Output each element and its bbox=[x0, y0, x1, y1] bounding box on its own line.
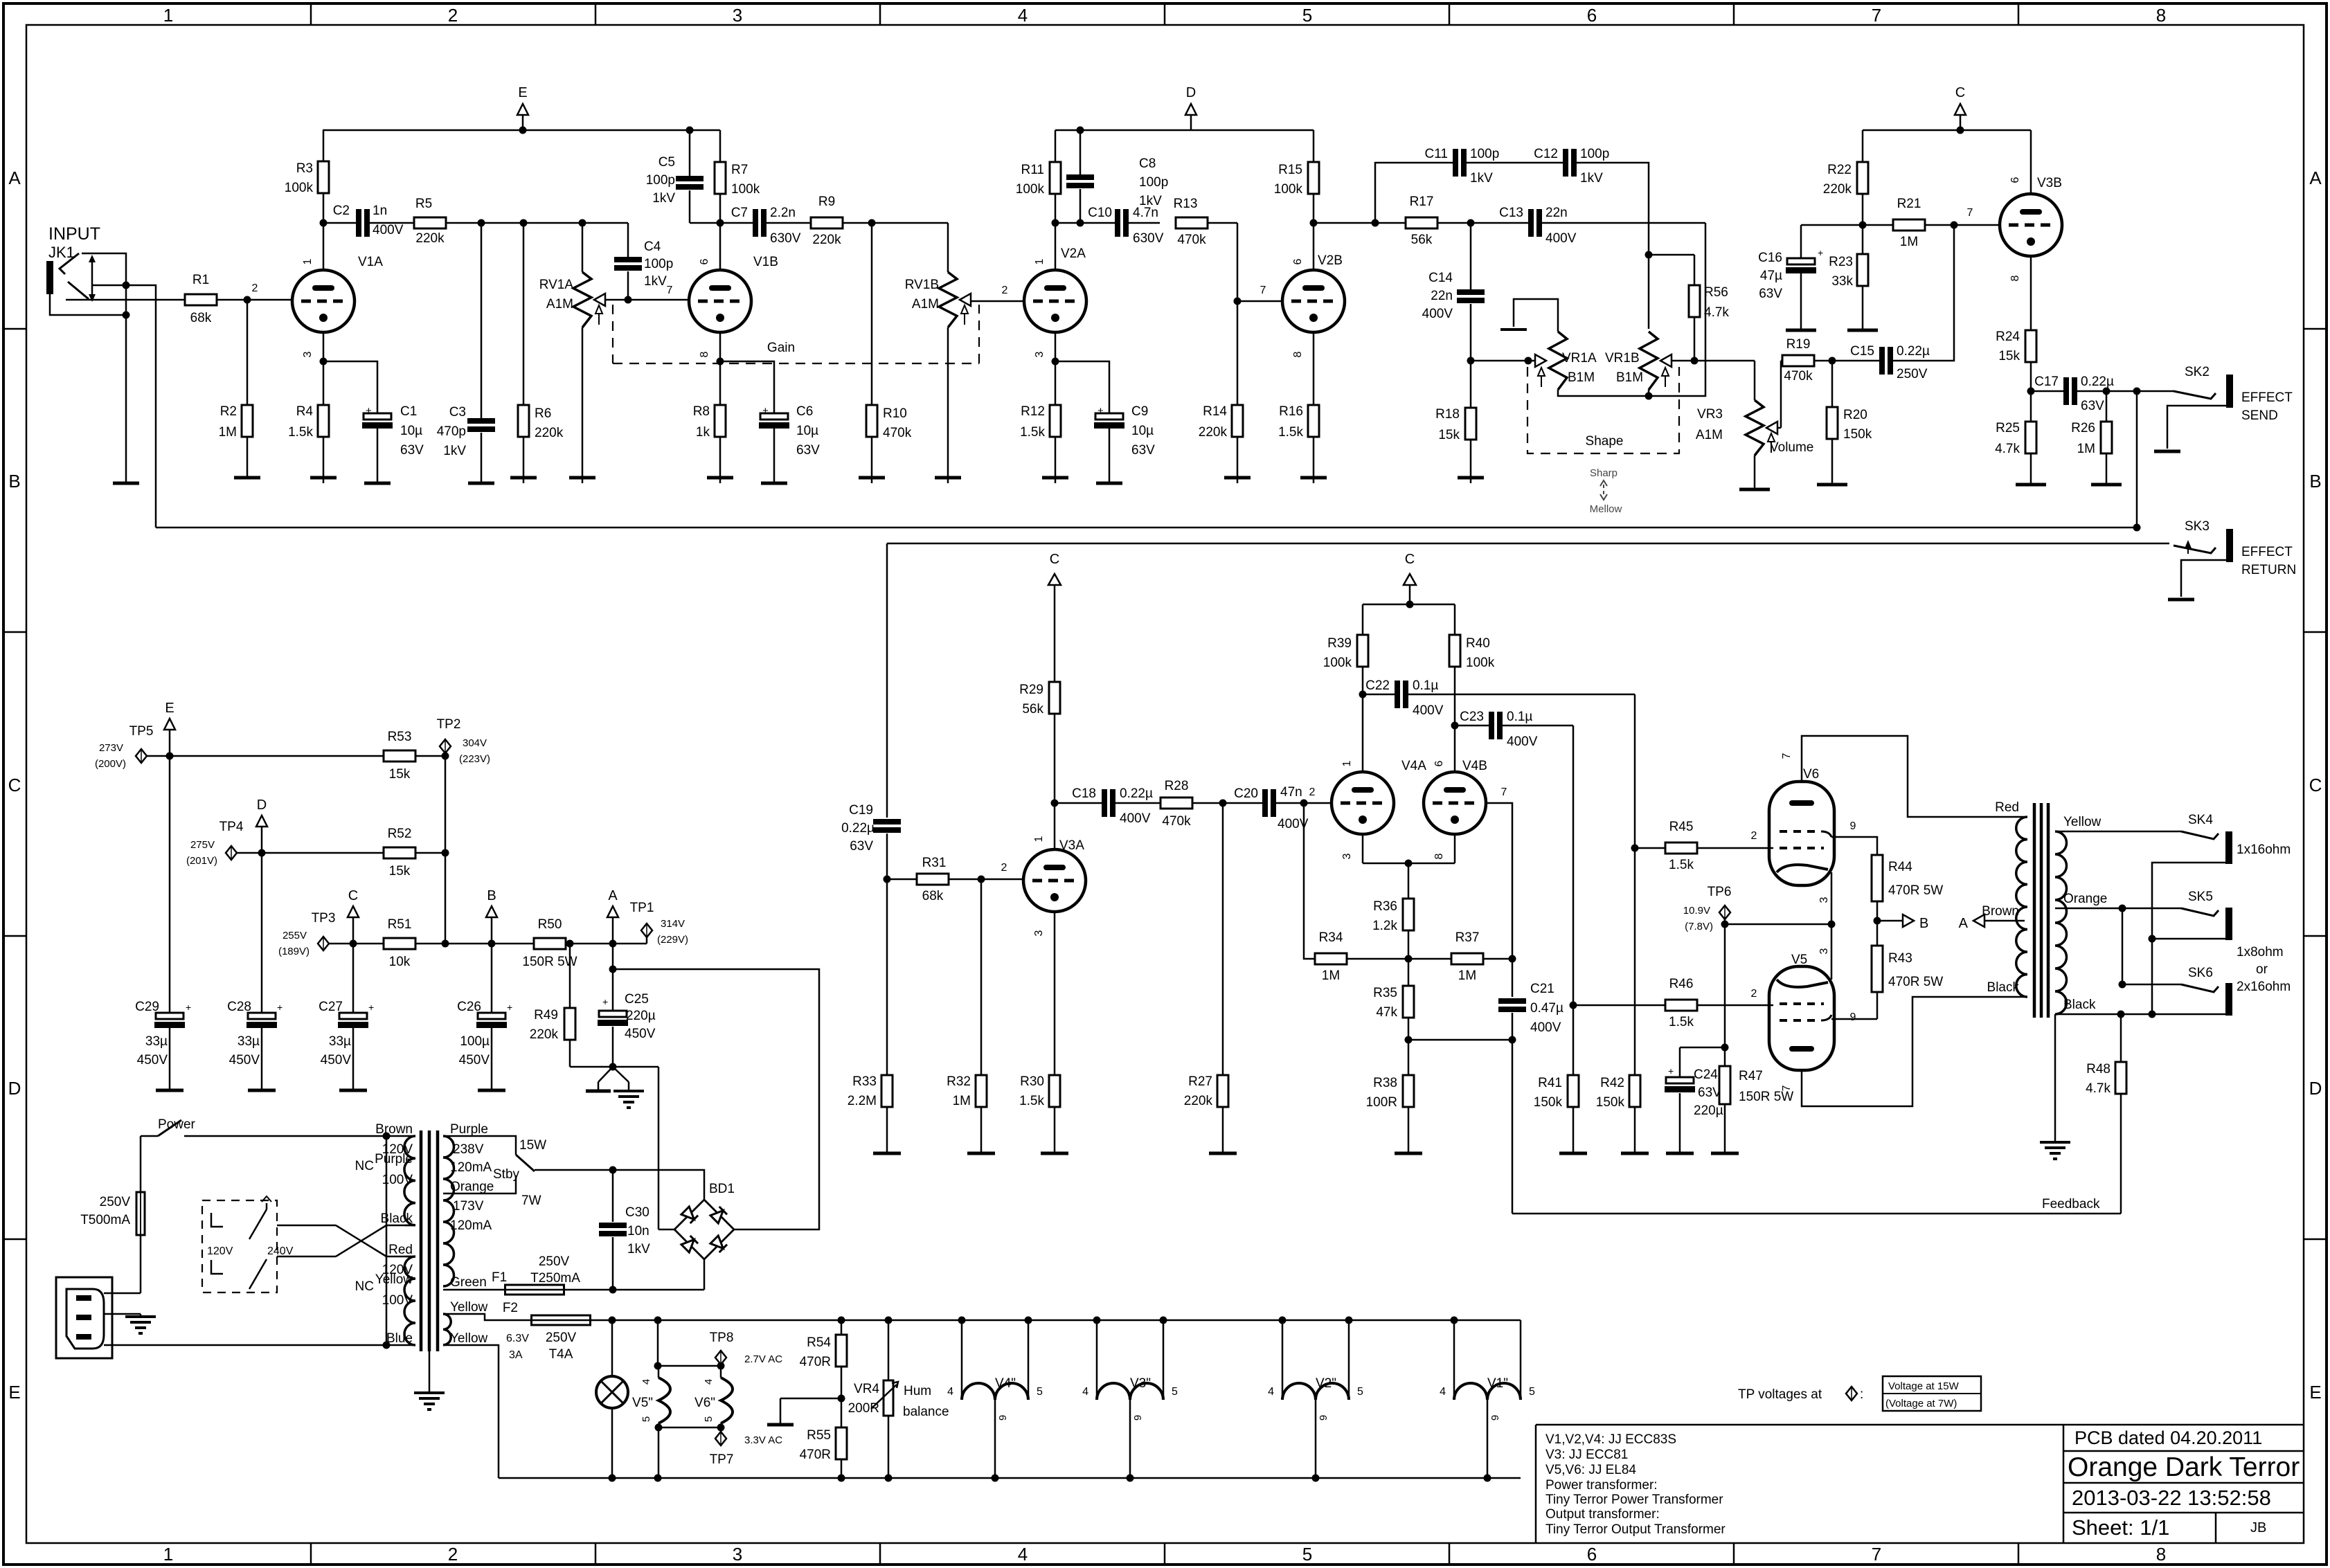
svg-text:100k: 100k bbox=[1323, 656, 1352, 670]
svg-text:(Voltage at 7W): (Voltage at 7W) bbox=[1885, 1398, 1957, 1409]
svg-text:B1M: B1M bbox=[1568, 370, 1595, 385]
svg-text:3A: 3A bbox=[509, 1349, 523, 1361]
svg-text:R30: R30 bbox=[1020, 1074, 1044, 1089]
svg-text:+: + bbox=[1668, 1065, 1674, 1076]
svg-text:1kV: 1kV bbox=[443, 444, 466, 458]
svg-text:R44: R44 bbox=[1888, 860, 1912, 874]
svg-text:R48: R48 bbox=[2086, 1062, 2111, 1076]
svg-text:400V: 400V bbox=[1413, 703, 1444, 718]
svg-text:68k: 68k bbox=[190, 311, 212, 325]
svg-text:8: 8 bbox=[2156, 5, 2166, 26]
svg-text:220k: 220k bbox=[530, 1027, 559, 1042]
svg-text:470R 5W: 470R 5W bbox=[1888, 883, 1943, 898]
svg-text:56k: 56k bbox=[1022, 702, 1043, 717]
svg-text:10n: 10n bbox=[627, 1224, 649, 1238]
svg-text:C: C bbox=[2309, 775, 2322, 795]
svg-text:C: C bbox=[1050, 552, 1059, 567]
svg-text:15k: 15k bbox=[1998, 349, 2020, 363]
svg-text:C19: C19 bbox=[849, 803, 873, 818]
svg-text:C30: C30 bbox=[625, 1205, 649, 1220]
svg-text:2: 2 bbox=[1751, 988, 1757, 1000]
svg-text:D: D bbox=[2309, 1078, 2322, 1099]
svg-text:D: D bbox=[1186, 85, 1196, 100]
svg-text:R19: R19 bbox=[1786, 337, 1811, 352]
svg-text:V3B: V3B bbox=[2037, 176, 2062, 190]
svg-text:220µ: 220µ bbox=[1694, 1103, 1723, 1118]
svg-text:63V: 63V bbox=[400, 443, 424, 458]
svg-text:0.22µ: 0.22µ bbox=[841, 821, 875, 836]
svg-text:Hum: Hum bbox=[904, 1384, 931, 1398]
svg-text:33µ: 33µ bbox=[238, 1034, 260, 1049]
svg-text:5: 5 bbox=[703, 1416, 715, 1422]
svg-text:T4A: T4A bbox=[549, 1347, 573, 1362]
svg-text:8: 8 bbox=[2156, 1544, 2166, 1565]
svg-text:173V: 173V bbox=[453, 1199, 484, 1214]
svg-text:100R: 100R bbox=[1366, 1095, 1397, 1110]
svg-text:R11: R11 bbox=[1021, 163, 1044, 177]
svg-text:C5: C5 bbox=[658, 155, 675, 170]
svg-text:Black: Black bbox=[1987, 980, 2020, 995]
svg-text:+: + bbox=[507, 1002, 512, 1013]
svg-text:R55: R55 bbox=[807, 1428, 831, 1443]
svg-text:R24: R24 bbox=[1996, 330, 2020, 344]
svg-text:R15: R15 bbox=[1278, 163, 1302, 177]
svg-text:TP1: TP1 bbox=[630, 901, 654, 915]
svg-text:B: B bbox=[1919, 916, 1928, 931]
svg-text:V4A: V4A bbox=[1401, 759, 1426, 773]
svg-text:V2B: V2B bbox=[1318, 253, 1343, 268]
svg-text:Sharp: Sharp bbox=[1590, 467, 1617, 479]
svg-text:SEND: SEND bbox=[2241, 408, 2278, 423]
svg-text:240V: 240V bbox=[267, 1245, 294, 1257]
svg-text:5: 5 bbox=[1357, 1386, 1363, 1398]
svg-text:200R: 200R bbox=[848, 1401, 879, 1416]
svg-text:400V: 400V bbox=[1530, 1020, 1561, 1035]
svg-text:8: 8 bbox=[1292, 351, 1304, 357]
svg-text:SK2: SK2 bbox=[2185, 365, 2210, 379]
svg-text:1.5k: 1.5k bbox=[1669, 1015, 1694, 1029]
svg-text:Feedback: Feedback bbox=[2042, 1197, 2100, 1211]
svg-text:0.22µ: 0.22µ bbox=[1120, 786, 1153, 801]
svg-text:Tiny Terror Power Transformer: Tiny Terror Power Transformer bbox=[1545, 1493, 1723, 1507]
svg-text:1M: 1M bbox=[1900, 235, 1918, 249]
svg-text:4.7k: 4.7k bbox=[1995, 442, 2020, 456]
svg-text:238V: 238V bbox=[453, 1142, 484, 1157]
svg-text:V5: V5 bbox=[1791, 953, 1807, 967]
svg-text:R32: R32 bbox=[947, 1074, 971, 1089]
svg-text:V2A: V2A bbox=[1061, 246, 1086, 261]
svg-text:B: B bbox=[2309, 471, 2321, 492]
svg-text:3.3V AC: 3.3V AC bbox=[744, 1434, 782, 1446]
svg-text:C13: C13 bbox=[1499, 206, 1523, 220]
svg-text:33µ: 33µ bbox=[329, 1034, 351, 1049]
svg-text:63V: 63V bbox=[2081, 399, 2104, 413]
svg-text:4: 4 bbox=[1082, 1386, 1088, 1398]
svg-text:6.3V: 6.3V bbox=[506, 1333, 529, 1344]
svg-text:255V: 255V bbox=[283, 930, 307, 941]
svg-text:R41: R41 bbox=[1538, 1076, 1562, 1090]
svg-text:1: 1 bbox=[1034, 258, 1046, 264]
svg-text:Power transformer:: Power transformer: bbox=[1545, 1478, 1658, 1493]
svg-text:470k: 470k bbox=[1162, 814, 1191, 829]
svg-text:15k: 15k bbox=[1438, 428, 1460, 442]
svg-text:1.5k: 1.5k bbox=[1020, 425, 1045, 440]
svg-text:10µ: 10µ bbox=[400, 424, 422, 438]
svg-text:R25: R25 bbox=[1996, 421, 2020, 435]
svg-text:47n: 47n bbox=[1280, 785, 1302, 800]
svg-text:22n: 22n bbox=[1545, 206, 1568, 220]
svg-text:Black: Black bbox=[2063, 998, 2096, 1012]
svg-text:7: 7 bbox=[1872, 5, 1881, 26]
svg-text:470k: 470k bbox=[883, 426, 912, 440]
svg-text:4: 4 bbox=[1018, 1544, 1028, 1565]
svg-text:100p: 100p bbox=[1580, 147, 1609, 161]
svg-text:E: E bbox=[2309, 1382, 2321, 1403]
svg-text:(200V): (200V) bbox=[95, 758, 126, 770]
svg-text:1x8ohm: 1x8ohm bbox=[2237, 945, 2284, 959]
svg-text:450V: 450V bbox=[321, 1053, 352, 1067]
svg-text:V3: JJ ECC81: V3: JJ ECC81 bbox=[1545, 1448, 1628, 1462]
svg-text:1M: 1M bbox=[219, 425, 237, 440]
svg-text:9: 9 bbox=[1850, 1011, 1856, 1023]
svg-text:5: 5 bbox=[1037, 1386, 1043, 1398]
svg-text:7: 7 bbox=[667, 285, 673, 296]
svg-text:R10: R10 bbox=[883, 406, 907, 421]
svg-text:+: + bbox=[366, 405, 372, 417]
svg-text:R33: R33 bbox=[852, 1074, 877, 1089]
svg-text:C8: C8 bbox=[1139, 156, 1156, 171]
svg-text:150R 5W: 150R 5W bbox=[1739, 1090, 1793, 1104]
svg-text:3: 3 bbox=[1033, 930, 1045, 936]
svg-text:470R 5W: 470R 5W bbox=[1888, 975, 1943, 989]
svg-text:A: A bbox=[608, 888, 618, 903]
svg-text:1: 1 bbox=[302, 258, 314, 264]
svg-text:120mA: 120mA bbox=[450, 1160, 492, 1175]
svg-text:R40: R40 bbox=[1466, 636, 1490, 651]
svg-text:A: A bbox=[1959, 916, 1969, 931]
svg-text:A: A bbox=[8, 168, 21, 188]
svg-text:C: C bbox=[348, 888, 358, 903]
svg-text:470p: 470p bbox=[437, 424, 466, 439]
svg-text:BD1: BD1 bbox=[709, 1182, 735, 1196]
svg-text:1: 1 bbox=[163, 5, 173, 26]
svg-text:0.47µ: 0.47µ bbox=[1530, 1001, 1563, 1016]
svg-text:V6: V6 bbox=[1803, 767, 1819, 782]
svg-text:Tiny Terror Output Transformer: Tiny Terror Output Transformer bbox=[1545, 1522, 1726, 1537]
svg-text:R1: R1 bbox=[192, 273, 209, 287]
svg-text:6: 6 bbox=[699, 258, 710, 264]
svg-text:R8: R8 bbox=[693, 404, 710, 419]
svg-text:C9: C9 bbox=[1131, 404, 1148, 419]
svg-text:+: + bbox=[1818, 247, 1823, 258]
svg-text:1.5k: 1.5k bbox=[1019, 1094, 1044, 1108]
svg-text:1kV: 1kV bbox=[652, 191, 675, 206]
svg-text:SK3: SK3 bbox=[2185, 519, 2210, 534]
svg-text:C17: C17 bbox=[2034, 375, 2059, 389]
svg-text:1kV: 1kV bbox=[644, 274, 667, 289]
svg-text:450V: 450V bbox=[137, 1053, 168, 1067]
svg-text:56k: 56k bbox=[1411, 233, 1433, 247]
svg-text:10k: 10k bbox=[389, 955, 411, 969]
svg-text:R21: R21 bbox=[1897, 197, 1921, 211]
svg-text:C: C bbox=[1405, 552, 1415, 567]
svg-text:5: 5 bbox=[1172, 1386, 1178, 1398]
svg-text:C10: C10 bbox=[1088, 206, 1112, 220]
svg-text:or: or bbox=[2256, 962, 2268, 977]
svg-text:C6: C6 bbox=[796, 404, 813, 419]
svg-text:R4: R4 bbox=[296, 404, 314, 419]
svg-text:100p: 100p bbox=[1470, 147, 1499, 161]
svg-text:R28: R28 bbox=[1165, 779, 1189, 793]
svg-text:6: 6 bbox=[2009, 177, 2021, 183]
svg-text:6: 6 bbox=[1587, 1544, 1597, 1565]
svg-text:R16: R16 bbox=[1279, 404, 1303, 419]
svg-text:R37: R37 bbox=[1455, 930, 1480, 945]
svg-text:400V: 400V bbox=[373, 223, 404, 237]
svg-text:R34: R34 bbox=[1319, 930, 1343, 945]
svg-text:4: 4 bbox=[1268, 1386, 1274, 1398]
svg-text:1kV: 1kV bbox=[1470, 171, 1493, 186]
svg-text:1n: 1n bbox=[373, 204, 387, 218]
svg-text:TP8: TP8 bbox=[710, 1331, 734, 1345]
svg-text:C2: C2 bbox=[333, 204, 350, 218]
svg-text:V1A: V1A bbox=[358, 255, 383, 269]
svg-text:V2": V2" bbox=[1316, 1376, 1336, 1391]
svg-text:100V: 100V bbox=[382, 1293, 413, 1308]
svg-text:F1: F1 bbox=[492, 1270, 507, 1285]
svg-text:Yellow: Yellow bbox=[450, 1300, 488, 1315]
svg-text:Sheet: 1/1: Sheet: 1/1 bbox=[2072, 1515, 2169, 1540]
svg-text:3: 3 bbox=[733, 5, 742, 26]
svg-text:VR1B: VR1B bbox=[1605, 351, 1640, 366]
svg-text:R13: R13 bbox=[1174, 197, 1198, 211]
svg-text:1kV: 1kV bbox=[1580, 171, 1603, 186]
svg-text:1k: 1k bbox=[696, 425, 710, 440]
svg-text:Mellow: Mellow bbox=[1590, 503, 1622, 515]
svg-text:Orange: Orange bbox=[450, 1180, 494, 1194]
svg-text:2: 2 bbox=[448, 5, 458, 26]
svg-text::: : bbox=[1860, 1387, 1863, 1402]
svg-text:100k: 100k bbox=[1274, 182, 1303, 197]
svg-text:2.2M: 2.2M bbox=[848, 1094, 877, 1108]
svg-text:NC: NC bbox=[355, 1279, 374, 1294]
svg-text:A: A bbox=[2309, 168, 2322, 188]
svg-text:100µ: 100µ bbox=[460, 1034, 490, 1049]
svg-text:400V: 400V bbox=[1422, 307, 1453, 321]
svg-text:E: E bbox=[165, 701, 174, 716]
svg-text:C: C bbox=[1955, 85, 1965, 100]
svg-text:R50: R50 bbox=[538, 917, 562, 932]
svg-text:2: 2 bbox=[252, 282, 258, 294]
svg-text:120mA: 120mA bbox=[450, 1218, 492, 1233]
svg-text:15k: 15k bbox=[389, 864, 411, 878]
svg-text:C23: C23 bbox=[1460, 710, 1484, 724]
svg-text:1: 1 bbox=[163, 1544, 173, 1565]
svg-text:150k: 150k bbox=[1534, 1095, 1563, 1110]
svg-text:630V: 630V bbox=[1133, 231, 1164, 246]
svg-text:R42: R42 bbox=[1600, 1076, 1624, 1090]
svg-text:220µ: 220µ bbox=[626, 1009, 656, 1023]
svg-text:R14: R14 bbox=[1203, 404, 1227, 419]
svg-text:304V: 304V bbox=[463, 737, 487, 749]
svg-text:C7: C7 bbox=[731, 206, 748, 220]
svg-text:9: 9 bbox=[1850, 820, 1856, 832]
svg-text:273V: 273V bbox=[99, 742, 123, 754]
svg-text:VR3: VR3 bbox=[1697, 407, 1723, 422]
svg-text:1.2k: 1.2k bbox=[1372, 919, 1397, 933]
svg-text:TP6: TP6 bbox=[1708, 885, 1732, 899]
svg-text:B: B bbox=[8, 471, 20, 492]
svg-text:10µ: 10µ bbox=[1131, 424, 1154, 438]
svg-text:470R: 470R bbox=[800, 1448, 831, 1462]
svg-text:1.5k: 1.5k bbox=[288, 425, 313, 440]
svg-text:R46: R46 bbox=[1669, 977, 1694, 991]
svg-text:R7: R7 bbox=[731, 163, 748, 177]
svg-text:C29: C29 bbox=[135, 1000, 159, 1014]
svg-text:+: + bbox=[368, 1002, 374, 1013]
svg-text:220k: 220k bbox=[415, 231, 445, 246]
svg-text:5: 5 bbox=[640, 1416, 652, 1422]
svg-text:(201V): (201V) bbox=[186, 855, 217, 867]
svg-text:120V: 120V bbox=[207, 1245, 233, 1257]
svg-text:T500mA: T500mA bbox=[80, 1213, 130, 1227]
svg-text:4: 4 bbox=[1018, 5, 1028, 26]
svg-text:+: + bbox=[1097, 405, 1104, 417]
svg-text:Output transformer:: Output transformer: bbox=[1545, 1507, 1660, 1522]
svg-text:C22: C22 bbox=[1365, 678, 1390, 693]
svg-text:1M: 1M bbox=[1322, 968, 1340, 983]
svg-text:VR1A: VR1A bbox=[1562, 351, 1597, 366]
svg-text:63V: 63V bbox=[1131, 443, 1155, 458]
svg-text:1M: 1M bbox=[2077, 442, 2095, 456]
svg-text:470k: 470k bbox=[1177, 233, 1206, 247]
svg-text:100k: 100k bbox=[731, 182, 760, 197]
svg-text:V1,V2,V4: JJ ECC83S: V1,V2,V4: JJ ECC83S bbox=[1545, 1432, 1676, 1447]
svg-text:INPUT: INPUT bbox=[48, 224, 100, 244]
svg-text:PCB dated 04.20.2011: PCB dated 04.20.2011 bbox=[2074, 1427, 2262, 1448]
svg-text:R27: R27 bbox=[1188, 1074, 1212, 1089]
svg-text:7: 7 bbox=[1872, 1544, 1881, 1565]
svg-text:C15: C15 bbox=[1850, 344, 1874, 359]
svg-text:Shape: Shape bbox=[1586, 434, 1624, 449]
svg-text:D: D bbox=[8, 1078, 21, 1099]
svg-text:2: 2 bbox=[1751, 830, 1757, 842]
svg-text:150k: 150k bbox=[1596, 1095, 1625, 1110]
svg-text:2.7V AC: 2.7V AC bbox=[744, 1353, 782, 1365]
svg-text:TP5: TP5 bbox=[129, 724, 154, 739]
svg-text:T250mA: T250mA bbox=[530, 1271, 580, 1286]
svg-text:TP2: TP2 bbox=[437, 717, 461, 732]
svg-text:R47: R47 bbox=[1739, 1069, 1763, 1083]
svg-text:314V: 314V bbox=[661, 918, 685, 930]
svg-text:Brown: Brown bbox=[375, 1122, 413, 1137]
svg-text:+: + bbox=[602, 996, 608, 1007]
svg-text:(229V): (229V) bbox=[657, 934, 688, 946]
svg-text:RV1A: RV1A bbox=[539, 278, 574, 292]
svg-text:9: 9 bbox=[997, 1415, 1009, 1421]
svg-text:100V: 100V bbox=[382, 1173, 413, 1187]
svg-text:8: 8 bbox=[2009, 275, 2021, 281]
svg-text:V4": V4" bbox=[995, 1376, 1016, 1391]
svg-text:100k: 100k bbox=[1016, 182, 1045, 197]
svg-text:V3": V3" bbox=[1130, 1376, 1151, 1391]
svg-text:33k: 33k bbox=[1831, 274, 1853, 289]
svg-text:C3: C3 bbox=[449, 405, 466, 420]
svg-text:R29: R29 bbox=[1019, 683, 1043, 697]
svg-text:C24: C24 bbox=[1694, 1067, 1718, 1082]
svg-text:3: 3 bbox=[1034, 351, 1046, 357]
svg-text:5: 5 bbox=[1529, 1386, 1535, 1398]
svg-text:9: 9 bbox=[1489, 1415, 1501, 1421]
svg-text:V1": V1" bbox=[1487, 1376, 1508, 1391]
svg-text:B: B bbox=[487, 888, 496, 903]
svg-text:R35: R35 bbox=[1373, 986, 1397, 1000]
svg-text:4.7k: 4.7k bbox=[2086, 1081, 2111, 1096]
svg-text:100p: 100p bbox=[646, 173, 675, 188]
svg-text:balance: balance bbox=[903, 1405, 949, 1419]
svg-text:C25: C25 bbox=[625, 992, 649, 1007]
svg-text:C1: C1 bbox=[400, 404, 417, 419]
svg-text:C16: C16 bbox=[1758, 251, 1782, 265]
svg-text:63V: 63V bbox=[850, 839, 873, 854]
svg-text:NC: NC bbox=[355, 1159, 374, 1173]
svg-text:3: 3 bbox=[1818, 896, 1830, 903]
svg-text:470R: 470R bbox=[800, 1355, 831, 1369]
svg-text:SK4: SK4 bbox=[2188, 813, 2213, 827]
svg-text:10µ: 10µ bbox=[796, 424, 818, 438]
svg-text:Red: Red bbox=[388, 1243, 413, 1257]
svg-text:2.2n: 2.2n bbox=[770, 206, 796, 220]
svg-text:+: + bbox=[762, 405, 769, 417]
svg-text:SK6: SK6 bbox=[2188, 966, 2213, 980]
svg-text:Orange Dark Terror: Orange Dark Terror bbox=[2068, 1452, 2300, 1482]
svg-text:R23: R23 bbox=[1829, 255, 1853, 269]
svg-text:220k: 220k bbox=[812, 233, 841, 247]
svg-text:(223V): (223V) bbox=[459, 753, 490, 765]
svg-text:275V: 275V bbox=[190, 839, 215, 851]
svg-text:C26: C26 bbox=[457, 1000, 481, 1014]
svg-text:C28: C28 bbox=[227, 1000, 251, 1014]
svg-text:400V: 400V bbox=[1120, 811, 1151, 826]
svg-text:RV1B: RV1B bbox=[905, 278, 939, 292]
svg-text:Purple: Purple bbox=[375, 1152, 413, 1166]
svg-text:C14: C14 bbox=[1428, 271, 1453, 285]
svg-text:2: 2 bbox=[1309, 786, 1316, 798]
svg-text:Red: Red bbox=[1995, 800, 2019, 815]
svg-text:63V: 63V bbox=[1698, 1085, 1721, 1100]
svg-text:R3: R3 bbox=[296, 161, 313, 176]
svg-text:R26: R26 bbox=[2071, 421, 2095, 435]
svg-text:3: 3 bbox=[1341, 853, 1353, 859]
svg-text:4: 4 bbox=[947, 1386, 953, 1398]
svg-text:100p: 100p bbox=[644, 257, 673, 271]
svg-text:0.1µ: 0.1µ bbox=[1507, 710, 1532, 724]
svg-text:E: E bbox=[8, 1382, 20, 1403]
svg-text:220k: 220k bbox=[1823, 182, 1852, 197]
svg-text:63V: 63V bbox=[796, 443, 820, 458]
svg-text:2x16ohm: 2x16ohm bbox=[2237, 980, 2291, 994]
svg-text:2: 2 bbox=[1001, 862, 1007, 874]
svg-text:R54: R54 bbox=[807, 1335, 831, 1350]
svg-text:+: + bbox=[277, 1002, 283, 1013]
svg-text:4: 4 bbox=[703, 1379, 715, 1385]
svg-text:R36: R36 bbox=[1373, 899, 1397, 914]
svg-text:7: 7 bbox=[1967, 207, 1973, 219]
svg-text:A1M: A1M bbox=[912, 297, 939, 312]
svg-text:8: 8 bbox=[699, 351, 710, 357]
svg-text:C4: C4 bbox=[644, 240, 661, 254]
svg-text:9: 9 bbox=[1132, 1415, 1144, 1421]
